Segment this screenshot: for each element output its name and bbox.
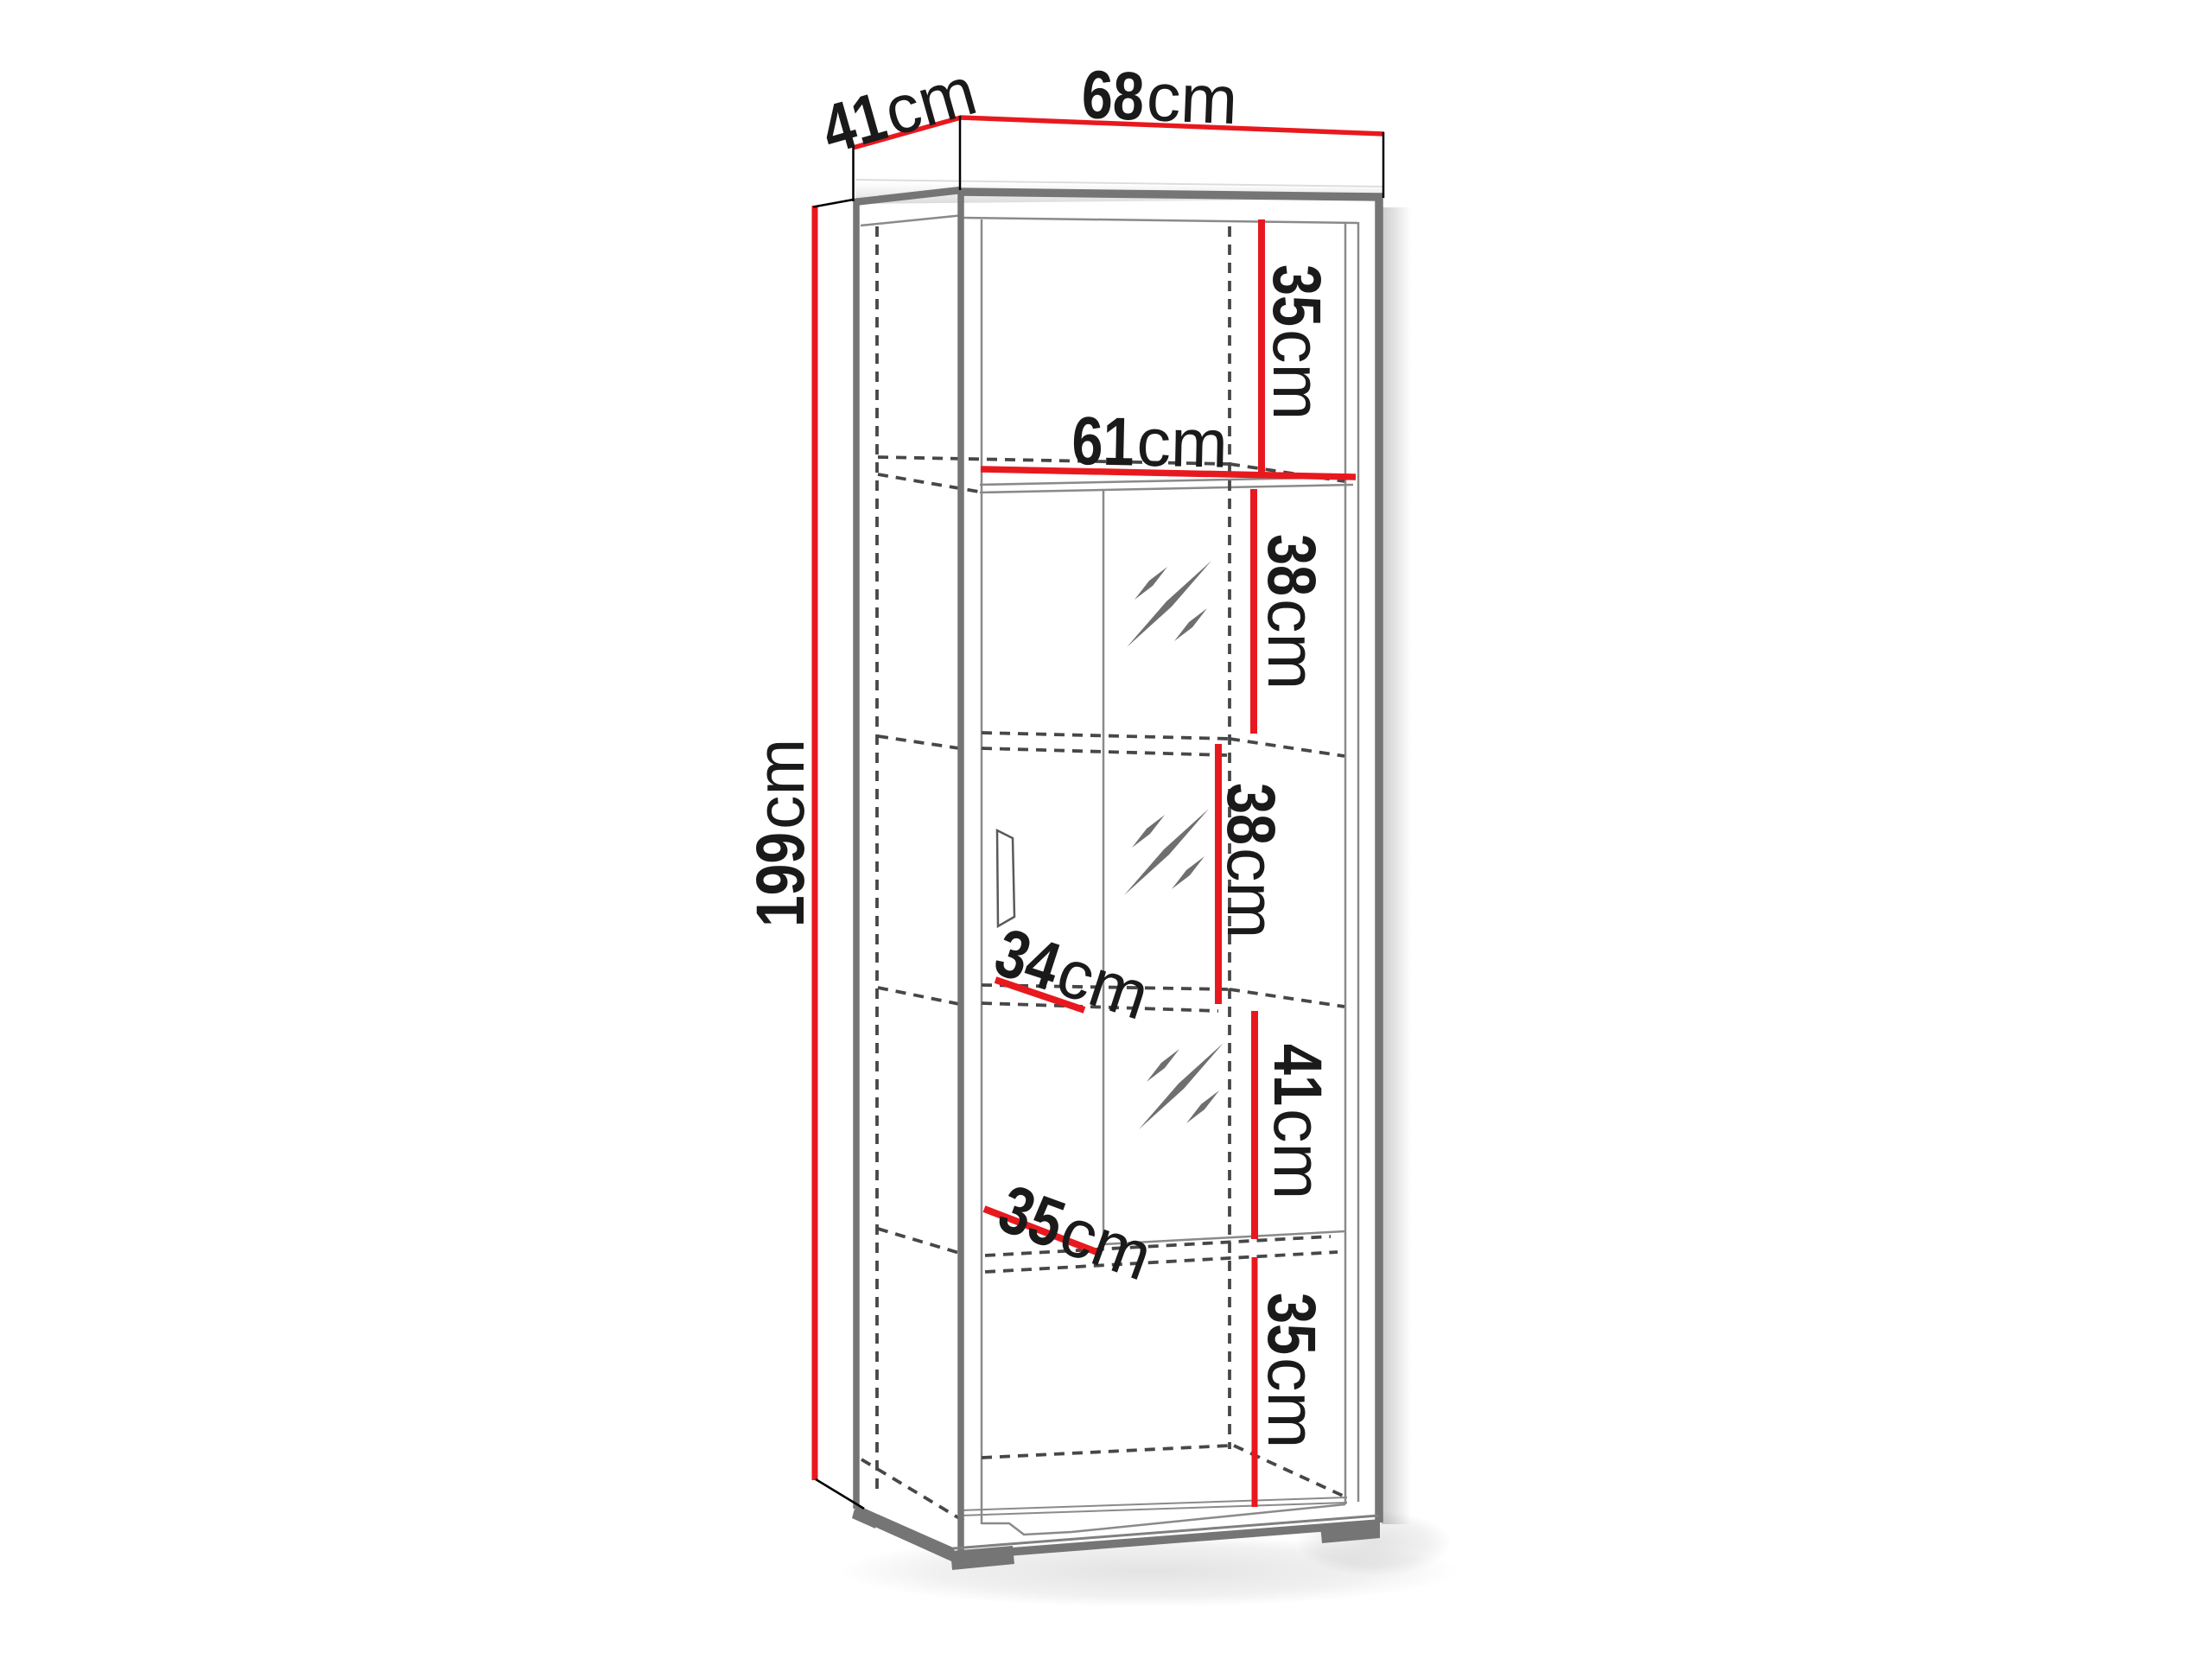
svg-text:cm: cm [1260, 1109, 1337, 1199]
svg-text:35: 35 [1259, 264, 1336, 327]
svg-text:cm: cm [1213, 848, 1290, 938]
svg-text:cm: cm [741, 739, 818, 829]
svg-text:cm: cm [1136, 404, 1229, 482]
svg-text:38: 38 [1213, 783, 1290, 845]
svg-text:38: 38 [1254, 534, 1331, 596]
svg-text:cm: cm [1254, 1357, 1331, 1448]
svg-text:cm: cm [1254, 599, 1331, 690]
svg-text:68: 68 [1080, 55, 1146, 135]
svg-text:61: 61 [1071, 402, 1135, 480]
svg-text:35: 35 [1254, 1293, 1331, 1355]
svg-text:cm: cm [1259, 329, 1336, 420]
svg-text:41: 41 [1260, 1044, 1337, 1106]
svg-text:199: 199 [741, 832, 818, 927]
svg-text:cm: cm [1145, 58, 1239, 138]
